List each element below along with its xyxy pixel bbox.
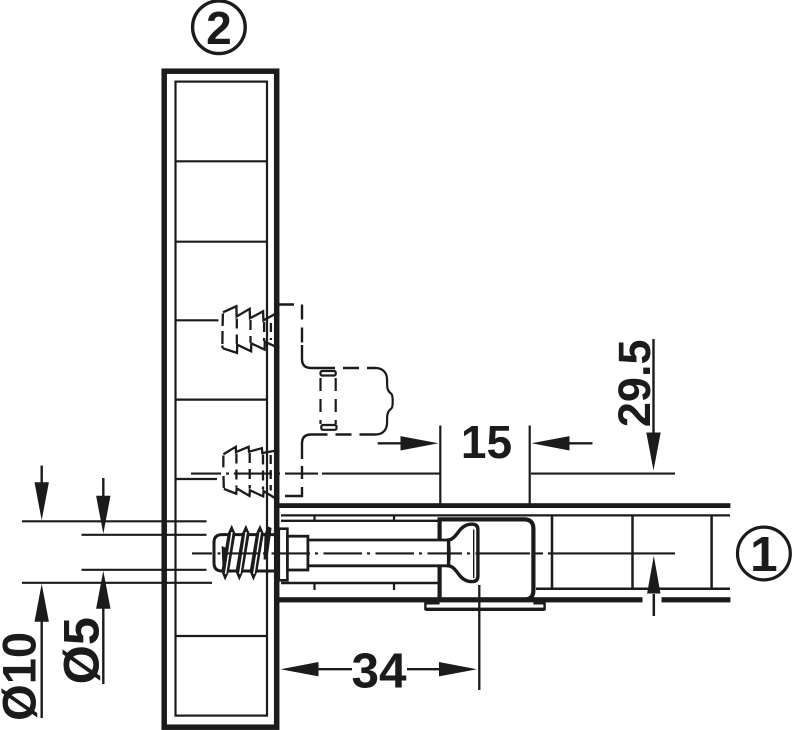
svg-text:29.5: 29.5: [609, 340, 660, 428]
svg-text:34: 34: [351, 644, 407, 699]
svg-text:1: 1: [750, 527, 778, 582]
svg-text:Ø10: Ø10: [0, 632, 46, 721]
svg-text:Ø5: Ø5: [53, 617, 110, 684]
svg-text:2: 2: [206, 2, 232, 54]
svg-text:15: 15: [461, 416, 512, 468]
